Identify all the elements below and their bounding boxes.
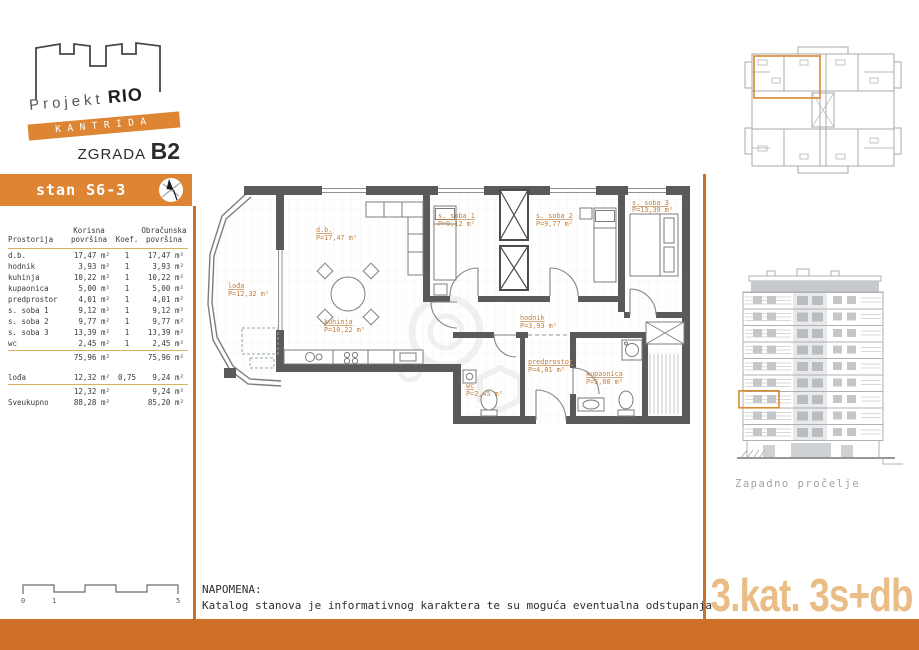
project-logo: Projekt RIO KANTRIDA ZGRADA B2 — [28, 34, 180, 164]
total-row: Sveukupno88,28 m²85,20 m² — [8, 397, 188, 408]
disclaimer-note: NAPOMENA: Katalog stanova je informativn… — [202, 583, 722, 612]
subtotal-row: 75,96 m²75,96 m² — [8, 352, 188, 363]
table-row: s. soba 19,12 m²19,12 m² — [8, 305, 188, 316]
subtotal-row: 12,32 m²9,24 m² — [8, 386, 188, 397]
table-row: kupaonica5,00 m²15,00 m² — [8, 283, 188, 294]
roof — [749, 269, 881, 292]
table-header: Prostorija Korisna površina Koef. Obraču… — [8, 220, 188, 247]
divider-right — [703, 174, 706, 619]
unit-highlight-box — [754, 56, 820, 98]
logo-rio-text: RIO — [107, 84, 144, 107]
room-label: kupaonica — [586, 370, 623, 378]
facade-floors — [743, 292, 883, 441]
header-room: Prostorija — [8, 235, 64, 244]
building-code: B2 — [151, 138, 180, 164]
scale-tick: 0 — [21, 597, 25, 605]
room-label: lođa — [228, 282, 244, 290]
building-label: ZGRADA — [78, 146, 147, 163]
table-row: predprostor4,01 m²14,01 m² — [8, 294, 188, 305]
key-plan — [740, 30, 906, 188]
room-area: P=10,22 m² — [324, 326, 365, 334]
room-label: hodnik — [520, 314, 545, 322]
area-table: Prostorija Korisna površina Koef. Obraču… — [8, 220, 188, 408]
logo-ribbon: KANTRIDA — [28, 111, 181, 140]
scale-tick: 1 — [52, 597, 56, 605]
compass-icon — [158, 177, 184, 203]
room-area: P=13,39 m² — [632, 206, 673, 214]
room-area: P=4,01 m² — [528, 366, 565, 374]
room-label: predprostor — [528, 358, 573, 366]
catalog-page: Projekt RIO KANTRIDA ZGRADA B2 stan S6-3… — [0, 0, 919, 650]
room-area: P=5,00 m² — [586, 378, 623, 386]
kitchen-counter — [284, 350, 423, 364]
loggia-row: lođa12,32 m²0,759,24 m² — [8, 372, 188, 383]
table-rule — [8, 384, 188, 385]
header-useful-area: Korisna površina — [64, 226, 114, 244]
elevation-caption: Zapadno pročelje — [735, 478, 860, 490]
room-label: s. soba 1 — [438, 212, 475, 220]
floor-plan: lođa P=12,32 m² d.b. P=17,47 m² kuhinja … — [198, 172, 698, 437]
unit-banner: stan S6-3 — [0, 174, 192, 206]
floor-type-label: 3.kat. 3s+db — [711, 568, 913, 622]
elevation-drawing — [733, 268, 908, 478]
scale-tick: 5 — [176, 597, 180, 605]
scale-bar: 0 1 5 — [20, 578, 185, 606]
table-row: wc2,45 m²12,45 m² — [8, 338, 188, 349]
bed-double — [630, 214, 678, 276]
room-area: P=2,45 m² — [466, 390, 503, 398]
room-area: P=3,93 m² — [520, 322, 557, 330]
table-row: d.b.17,47 m²117,47 m² — [8, 250, 188, 261]
building-name: ZGRADA B2 — [28, 138, 180, 165]
table-row: kuhinja10,22 m²110,22 m² — [8, 272, 188, 283]
table-row: s. soba 313,39 m²113,39 m² — [8, 327, 188, 338]
ground-floor — [737, 441, 903, 465]
shaft-boxes — [500, 190, 528, 290]
note-body: Katalog stanova je informativnog karakte… — [202, 599, 722, 612]
table-row: hodnik3,93 m²13,93 m² — [8, 261, 188, 272]
table-row: s. soba 29,77 m²19,77 m² — [8, 316, 188, 327]
note-title: NAPOMENA: — [202, 583, 722, 596]
table-rule — [8, 248, 188, 249]
room-label: s. soba 2 — [536, 212, 573, 220]
table-gap — [8, 363, 188, 372]
divider-left — [193, 206, 196, 619]
table-rule — [8, 350, 188, 351]
header-calculated-area: Obračunska površina — [140, 226, 188, 244]
header-coefficient: Koef. — [114, 235, 140, 244]
logo-project-text: Projekt — [28, 91, 104, 114]
wardrobe — [646, 322, 684, 344]
bottom-bar — [0, 619, 919, 650]
room-area: P=9,12 m² — [438, 220, 475, 228]
unit-name: stan S6-3 — [36, 174, 126, 206]
room-area: P=12,32 m² — [228, 290, 269, 298]
room-area: P=17,47 m² — [316, 234, 357, 242]
room-label: kuhinja — [324, 318, 353, 326]
room-label: d.b. — [316, 226, 332, 234]
room-area: P=9,77 m² — [536, 220, 573, 228]
room-label: wc — [466, 382, 474, 390]
